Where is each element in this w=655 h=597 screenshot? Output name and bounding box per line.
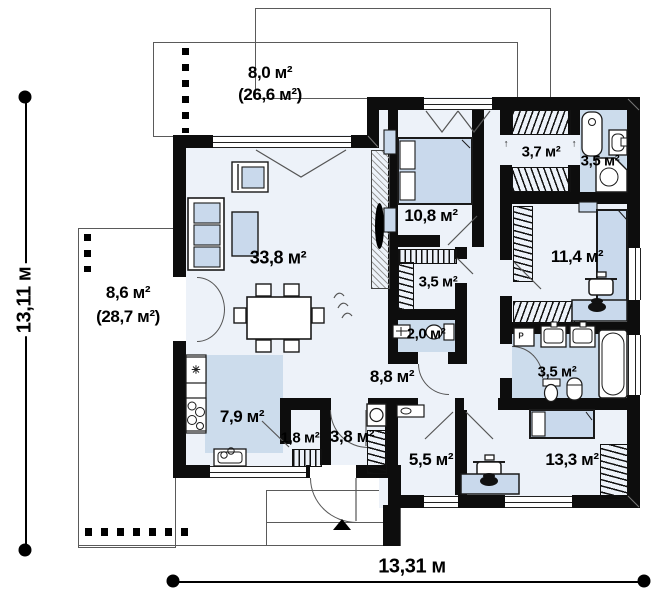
sliding-door-arrow-right: ↑ xyxy=(572,139,577,150)
bedroom-bottom-wardrobe xyxy=(600,444,628,500)
label-bedroom-top: 10,8 м² xyxy=(404,206,457,226)
wall-left-a xyxy=(173,135,186,277)
window-bedroom-right xyxy=(628,248,641,300)
wall-right-a xyxy=(627,97,640,248)
wall-bedroom-bottom xyxy=(388,235,440,247)
label-terrace-top-total: (26,6 м²) xyxy=(238,85,302,105)
terrace-side-outline xyxy=(78,228,176,548)
wall-bottom-right-b xyxy=(458,495,505,508)
wall-right-c xyxy=(627,395,640,508)
window-bathroom-right xyxy=(628,335,641,395)
wall-hall-bottom-d xyxy=(498,398,640,410)
french-door-gap xyxy=(173,277,186,341)
wall-rightzone-left-b xyxy=(500,165,512,260)
porch-wall-stub xyxy=(383,505,400,546)
dimension-dot-bottom-end xyxy=(638,575,651,588)
label-utility: 5,5 м² xyxy=(409,450,453,470)
label-terrace-side-total: (28,7 м²) xyxy=(96,307,160,327)
label-entry: 3,8 м² xyxy=(330,427,374,447)
window-bedroom-bottom xyxy=(505,496,572,508)
entrance-marker-icon xyxy=(333,519,351,530)
wall-top-right-b xyxy=(492,97,640,110)
window-kitchen-bottom xyxy=(210,466,306,478)
window-bedroom-top xyxy=(424,98,492,110)
sliding-door-arrow-left: ↑ xyxy=(504,139,509,150)
dimension-label-width: 13,31 м xyxy=(378,556,446,579)
closet-shelf xyxy=(292,449,322,467)
wardrobe-top-shelf-upper xyxy=(512,110,571,135)
porch-step-mid xyxy=(266,522,384,523)
wall-step-top xyxy=(367,97,379,135)
wall-rightzone-left-a xyxy=(500,110,512,135)
wall-wc-bottom-a xyxy=(388,352,418,364)
label-kitchen: 7,9 м² xyxy=(220,407,264,427)
bathroom-top-fill xyxy=(580,110,627,192)
window-living-terrace xyxy=(213,136,351,148)
wall-hall-bottom-c xyxy=(455,398,464,410)
entrance-door-arc xyxy=(310,478,357,523)
porch-step-left xyxy=(266,490,267,545)
porch-outline-right xyxy=(400,508,401,546)
floor-plan-canvas: ✳ P ↑ ↑ 8,0 м² (26,6 м²) 8,6 м² (28,7 м²… xyxy=(0,0,655,597)
label-wardrobe-mid: 3,5 м² xyxy=(419,274,458,291)
label-hallway: 8,8 м² xyxy=(370,367,414,387)
wall-right-b xyxy=(627,300,640,335)
dimension-line-bottom xyxy=(173,581,644,583)
washer-label: P xyxy=(518,332,523,341)
dimension-dot-top-left xyxy=(19,91,32,104)
wardrobe-mid-shelf-left xyxy=(398,262,414,310)
wall-topzone-bottom xyxy=(500,192,627,204)
label-bathroom-top: 3,5 м² xyxy=(581,153,620,170)
label-wardrobe-top: 3,7 м² xyxy=(522,144,561,161)
label-closet: 1,8 м² xyxy=(281,430,320,447)
bedroom-right-shelf-left xyxy=(513,206,533,282)
bedroom-right-wardrobe-bottom xyxy=(513,301,575,324)
fridge-icon: ✳ xyxy=(191,364,200,377)
label-living-room: 33,8 м² xyxy=(250,248,307,269)
label-bedroom-bottom: 13,3 м² xyxy=(545,450,598,470)
porch-dotted-edge xyxy=(85,528,188,536)
dimension-dot-bottom-left xyxy=(19,544,32,557)
wall-wc-bottom-b xyxy=(448,352,467,364)
dimension-label-height: 13,11 м xyxy=(14,264,37,337)
kitchen-zone-fill xyxy=(205,355,283,453)
label-terrace-side-area: 8,6 м² xyxy=(106,283,150,303)
label-bathroom-bottom: 3,5 м² xyxy=(538,364,577,381)
wall-rightzone-left-c xyxy=(500,296,512,344)
porch-outline-bottom xyxy=(78,545,400,546)
label-bedroom-right: 11,4 м² xyxy=(551,247,603,267)
wall-top-left-b xyxy=(351,135,379,148)
wall-bedroom-right xyxy=(472,110,484,247)
terrace-top-dotted-edge xyxy=(182,48,189,133)
wardrobe-top-shelf-lower xyxy=(512,167,571,192)
terrace-side-dotted-edge xyxy=(84,234,91,272)
dimension-dot-bottom-start xyxy=(167,575,180,588)
wall-bottom-left-a xyxy=(173,465,210,478)
wall-wardrobe-wc-divider xyxy=(388,309,467,320)
wall-top-right-a xyxy=(379,97,424,110)
wall-utility-bedroom-divider xyxy=(455,410,467,495)
label-terrace-top-area: 8,0 м² xyxy=(248,63,292,83)
label-wc: 2,0 м² xyxy=(407,326,446,343)
wall-left-b xyxy=(173,341,186,478)
window-utility-bottom xyxy=(424,496,458,508)
shaft-damper xyxy=(375,203,384,249)
